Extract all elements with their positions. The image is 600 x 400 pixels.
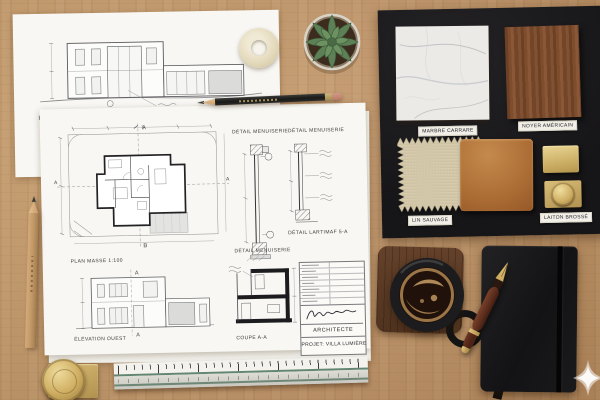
plan-axis-marker-right: A (226, 176, 230, 182)
marble-veins (395, 26, 489, 121)
title-block: ARCHITECTE PROJET: VILLA LUMIÈRE (299, 261, 367, 356)
brass-chip-sample (543, 145, 580, 173)
projet-label: PROJET: VILLA LUMIÈRE (301, 337, 365, 351)
title-block-table (300, 262, 365, 306)
brass-knob (42, 359, 85, 400)
plan-sheet: A B A A PLAN MASSE 1:100 DÉTAIL MENUISER… (39, 103, 370, 356)
brass-knob-sample (551, 182, 574, 205)
leather-sample (460, 139, 533, 211)
joinery-detail-drawing-1 (240, 139, 277, 262)
brass-knob-sample-plate (544, 180, 582, 208)
plan-axis-marker-bottom: B (143, 243, 147, 249)
brass-label: LAITON BROSSÉ (540, 212, 592, 223)
marble-sample (395, 26, 489, 121)
washi-tape-hole (251, 40, 267, 56)
architecte-label: ARCHITECTE (301, 324, 365, 338)
detail-menuiserie-label-3: DÉTAIL MENUISERIE (234, 247, 290, 254)
notebook-elastic-band (556, 246, 563, 392)
pencil-eraser (332, 93, 342, 100)
section-drawing (227, 262, 298, 331)
material-board: MARBRE CARRARE NOYER AMÉRICAIN LIN SAUVA… (378, 6, 600, 239)
sparkle-icon (572, 359, 600, 397)
brass-knob-ring (52, 369, 77, 394)
wooden-pencil (25, 196, 39, 348)
walnut-label: NOYER AMÉRICAIN (518, 120, 577, 131)
elevation-ouest-label-2: ÉLÉVATION OUEST (74, 336, 126, 343)
wood-pencil-tip (29, 201, 39, 213)
plan-axis-marker-left: A (54, 180, 58, 186)
coupe-label: COUPE A-A (236, 335, 267, 342)
detail-menuiserie-label-1: DÉTAIL MENUISERIE (232, 128, 288, 135)
floor-plan-drawing: A B A A (52, 119, 235, 251)
walnut-sample (505, 25, 582, 119)
linen-label: LIN SAUVAGE (408, 215, 452, 226)
detail-menuiserie-label-2: DÉTAIL MENUISERIE (288, 127, 344, 134)
west-elevation-drawing-2: A A (69, 266, 222, 339)
elevation2-axis-bottom: A (136, 332, 140, 338)
detail-lartimaf-label: DÉTAIL LARTIMAF 5-A (288, 229, 348, 236)
desk-surface: ÉLÉVATION OUEST (0, 0, 600, 400)
washi-tape (239, 28, 279, 68)
plan-masse-label: PLAN MASSE 1:100 (71, 258, 123, 265)
notebook (480, 246, 578, 393)
plan-axis-marker-top: A (142, 125, 146, 131)
coffee-mug (389, 257, 465, 333)
elevation2-axis-top: A (135, 270, 139, 276)
joinery-detail-drawing-2 (286, 137, 342, 226)
architect-signature (301, 305, 363, 325)
succulent-drawing (301, 4, 363, 76)
succulent-plant (301, 4, 363, 76)
